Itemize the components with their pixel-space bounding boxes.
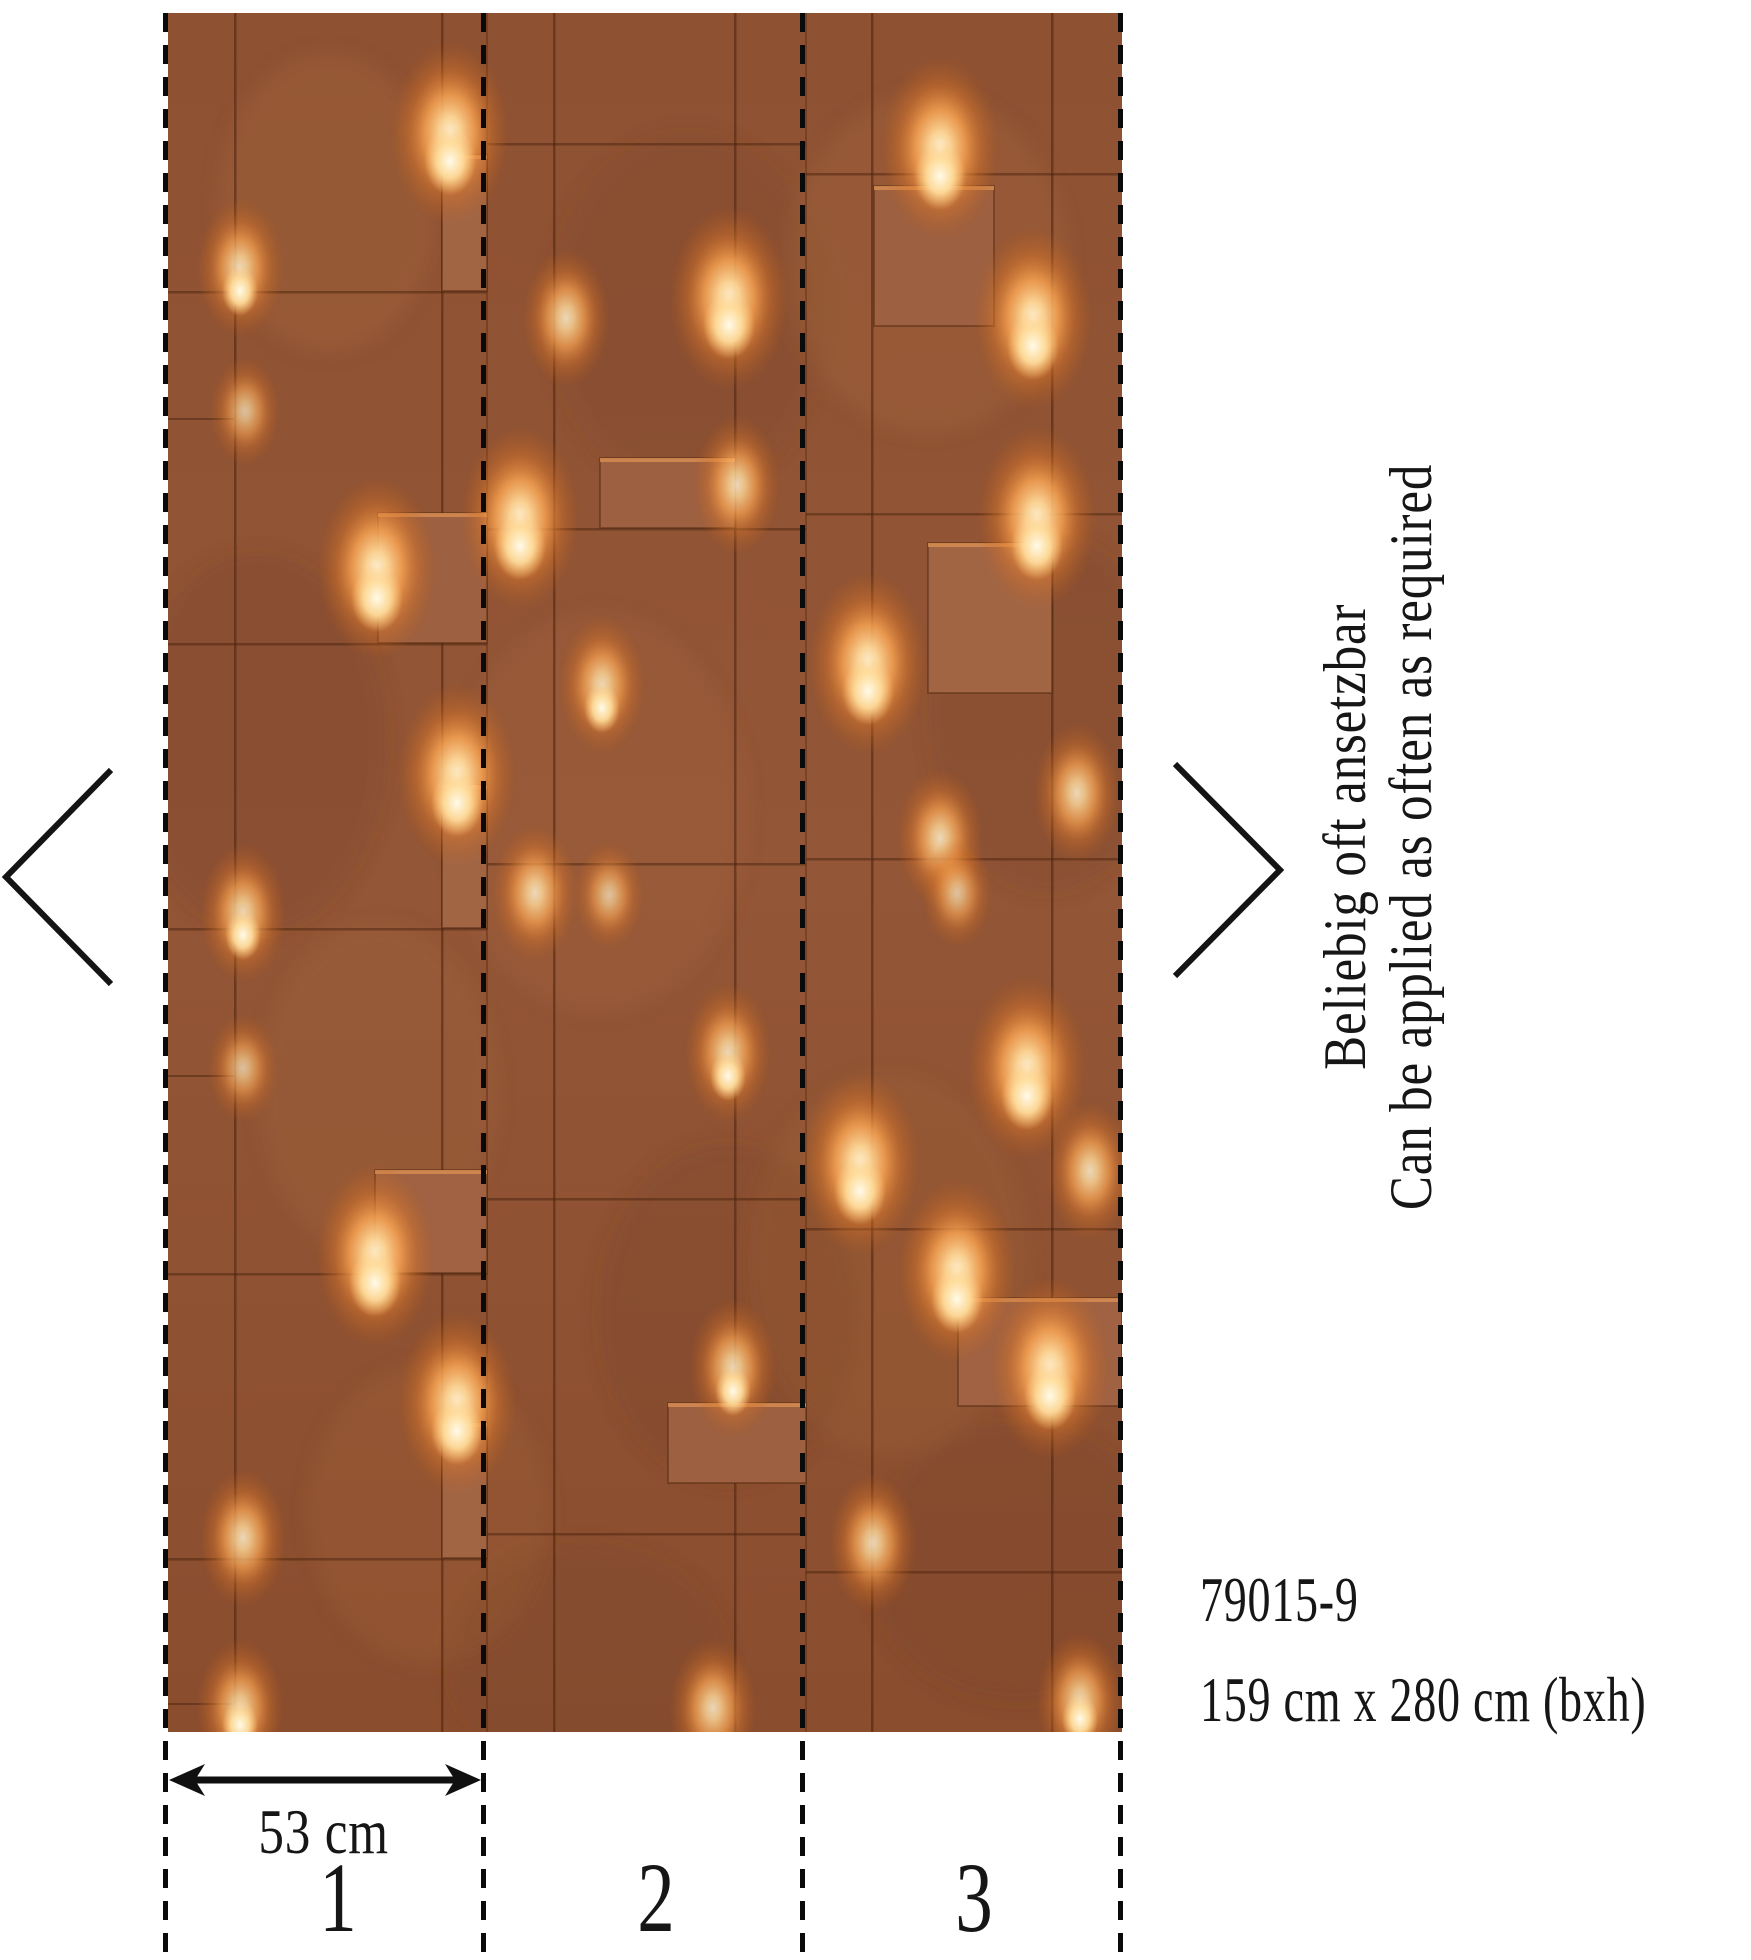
repeat-annotation-de: Beliebig oft ansetzbar — [1312, 396, 1378, 1278]
wallpaper-product-sheet: Beliebig oft ansetzbar Can be applied as… — [0, 0, 1751, 1960]
chevron-right-icon[interactable] — [1171, 760, 1284, 985]
cut-line-2 — [481, 13, 486, 1955]
repeat-annotation-en: Can be applied as often as required — [1378, 396, 1444, 1278]
strip-number-2: 2 — [496, 1848, 816, 1948]
repeat-annotation: Beliebig oft ansetzbar Can be applied as… — [1312, 396, 1444, 1278]
cut-line-4 — [1118, 13, 1123, 1955]
wallpaper-pattern-image — [168, 13, 1122, 1732]
article-number: 79015-9 — [1200, 1563, 1420, 1637]
product-dimensions: 159 cm x 280 cm (bxh) — [1200, 1663, 1751, 1737]
chevron-left-icon[interactable] — [2, 766, 114, 993]
strip-number-1: 1 — [178, 1848, 498, 1948]
cut-line-1 — [163, 13, 168, 1955]
cut-line-3 — [800, 13, 805, 1955]
strip-number-3: 3 — [814, 1848, 1134, 1948]
